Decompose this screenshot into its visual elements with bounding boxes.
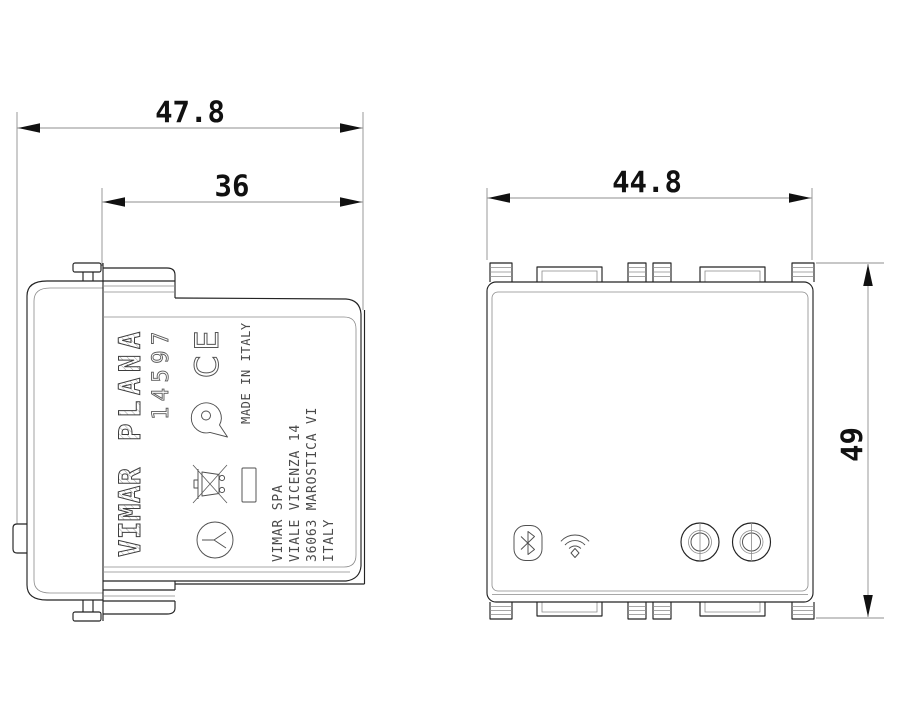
ce-mark: CE [188, 325, 226, 378]
address-line: VIMAR SPA [271, 484, 286, 562]
dimension-value: 47.8 [155, 95, 225, 129]
dimension-width: 44.8 [487, 165, 812, 260]
wide-tab-outlines [537, 267, 765, 282]
bottom-clip-cap [73, 612, 101, 621]
wide-tab-inner-lines [542, 271, 760, 282]
vimar-device-technical-drawing: 47.8 36 [0, 0, 900, 720]
technical-drawing-page: 47.8 36 [0, 0, 900, 720]
bluetooth-icon [514, 526, 542, 561]
wide-tab-outlines [537, 602, 765, 616]
address-line: 36063 MAROSTICA VI [305, 407, 320, 562]
bottom-step-block [103, 601, 175, 614]
wifi-dot [571, 549, 579, 558]
article-number-label: 14597 [149, 326, 174, 420]
made-in-label: MADE IN ITALY [239, 322, 253, 424]
faceplate-outline [487, 282, 813, 602]
bluetooth-rune [521, 532, 535, 555]
rear-bracket-inner-line [34, 288, 103, 593]
dimension-front-depth: 36 [102, 169, 363, 266]
address-line: VIALE VICENZA 14 [288, 424, 303, 562]
dimension-value: 49 [835, 427, 869, 462]
bottom-clip-stem [83, 600, 93, 612]
front-view: 44.8 49 [487, 165, 884, 619]
dimension-arrow [488, 193, 510, 203]
series-label: PLANA [113, 326, 147, 441]
brand-label: VIMAR [113, 467, 147, 557]
top-clip-stem [83, 272, 93, 281]
dimension-height: 49 [816, 263, 884, 618]
bottom-mounting-tabs [490, 602, 814, 619]
pushbutton-right[interactable] [733, 522, 771, 562]
dimension-value: 44.8 [612, 165, 682, 199]
rear-side-tab [13, 524, 27, 553]
top-clip-cap [73, 263, 101, 272]
dimension-arrow [863, 595, 873, 617]
side-view-markings: PLANA VIMAR 14597 CE MADE IN ITALY [113, 322, 337, 562]
wide-tab-inner-lines [542, 602, 760, 612]
faceplate-inner-outline [492, 292, 808, 591]
dimension-arrow [863, 264, 873, 286]
dimension-arrow [18, 123, 40, 133]
dimension-value: 36 [215, 169, 250, 203]
weee-crossed-bin-icon [193, 465, 227, 503]
weee-bar-mark [242, 468, 256, 502]
side-view: 47.8 36 [13, 95, 365, 621]
manufacturer-address: VIMAR SPA VIALE VICENZA 14 36063 MAROSTI… [271, 407, 337, 562]
front-faceplate [487, 282, 813, 602]
top-step-block [103, 268, 175, 298]
rear-bracket-outline [27, 281, 103, 600]
address-line: ITALY [322, 519, 337, 562]
top-mounting-tabs [490, 263, 814, 282]
dimension-arrow [340, 197, 362, 207]
imq-mark [191, 403, 227, 437]
dimension-arrow [340, 123, 362, 133]
wifi-waves [561, 535, 589, 549]
top-step-lines [103, 286, 175, 292]
pushbutton-left[interactable] [681, 522, 719, 562]
wifi-icon [561, 535, 589, 557]
y-in-circle-mark [197, 522, 233, 558]
dimension-arrow [789, 193, 811, 203]
dimension-arrow [103, 197, 125, 207]
